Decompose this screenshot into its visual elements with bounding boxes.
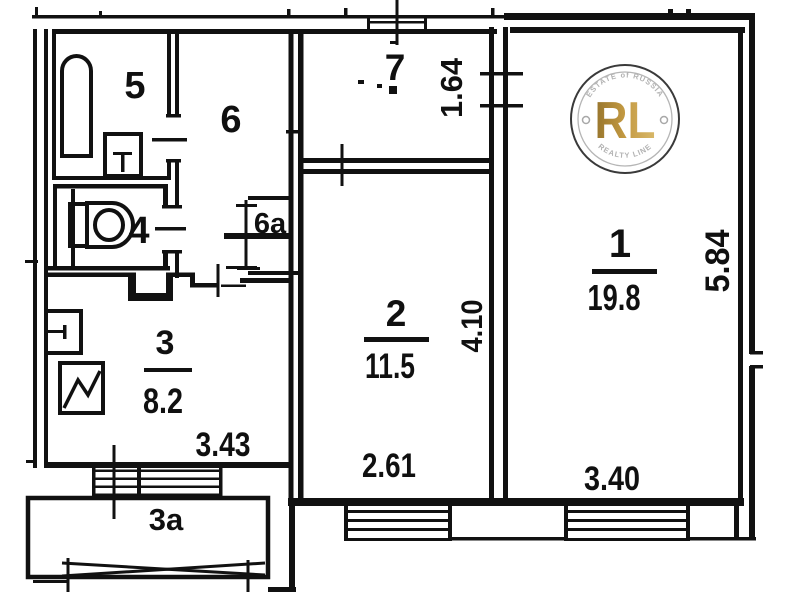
- svg-text:6a: 6a: [254, 208, 287, 240]
- svg-text:5.84: 5.84: [699, 229, 737, 292]
- svg-text:RL: RL: [595, 92, 656, 150]
- svg-text:3: 3: [156, 324, 175, 362]
- svg-text:19.8: 19.8: [588, 277, 641, 318]
- svg-text:11.5: 11.5: [365, 347, 415, 386]
- svg-text:3.40: 3.40: [584, 460, 640, 498]
- svg-text:3a: 3a: [149, 502, 184, 537]
- svg-text:6: 6: [220, 99, 241, 141]
- svg-text:2.61: 2.61: [362, 447, 416, 485]
- svg-text:5: 5: [124, 65, 145, 107]
- svg-text:8.2: 8.2: [143, 382, 183, 421]
- svg-text:3.43: 3.43: [196, 426, 251, 464]
- svg-text:4.10: 4.10: [456, 300, 489, 353]
- svg-text:2: 2: [386, 293, 407, 334]
- svg-text:7: 7: [385, 47, 406, 88]
- svg-text:1: 1: [609, 222, 631, 266]
- svg-text:1.64: 1.64: [434, 57, 469, 118]
